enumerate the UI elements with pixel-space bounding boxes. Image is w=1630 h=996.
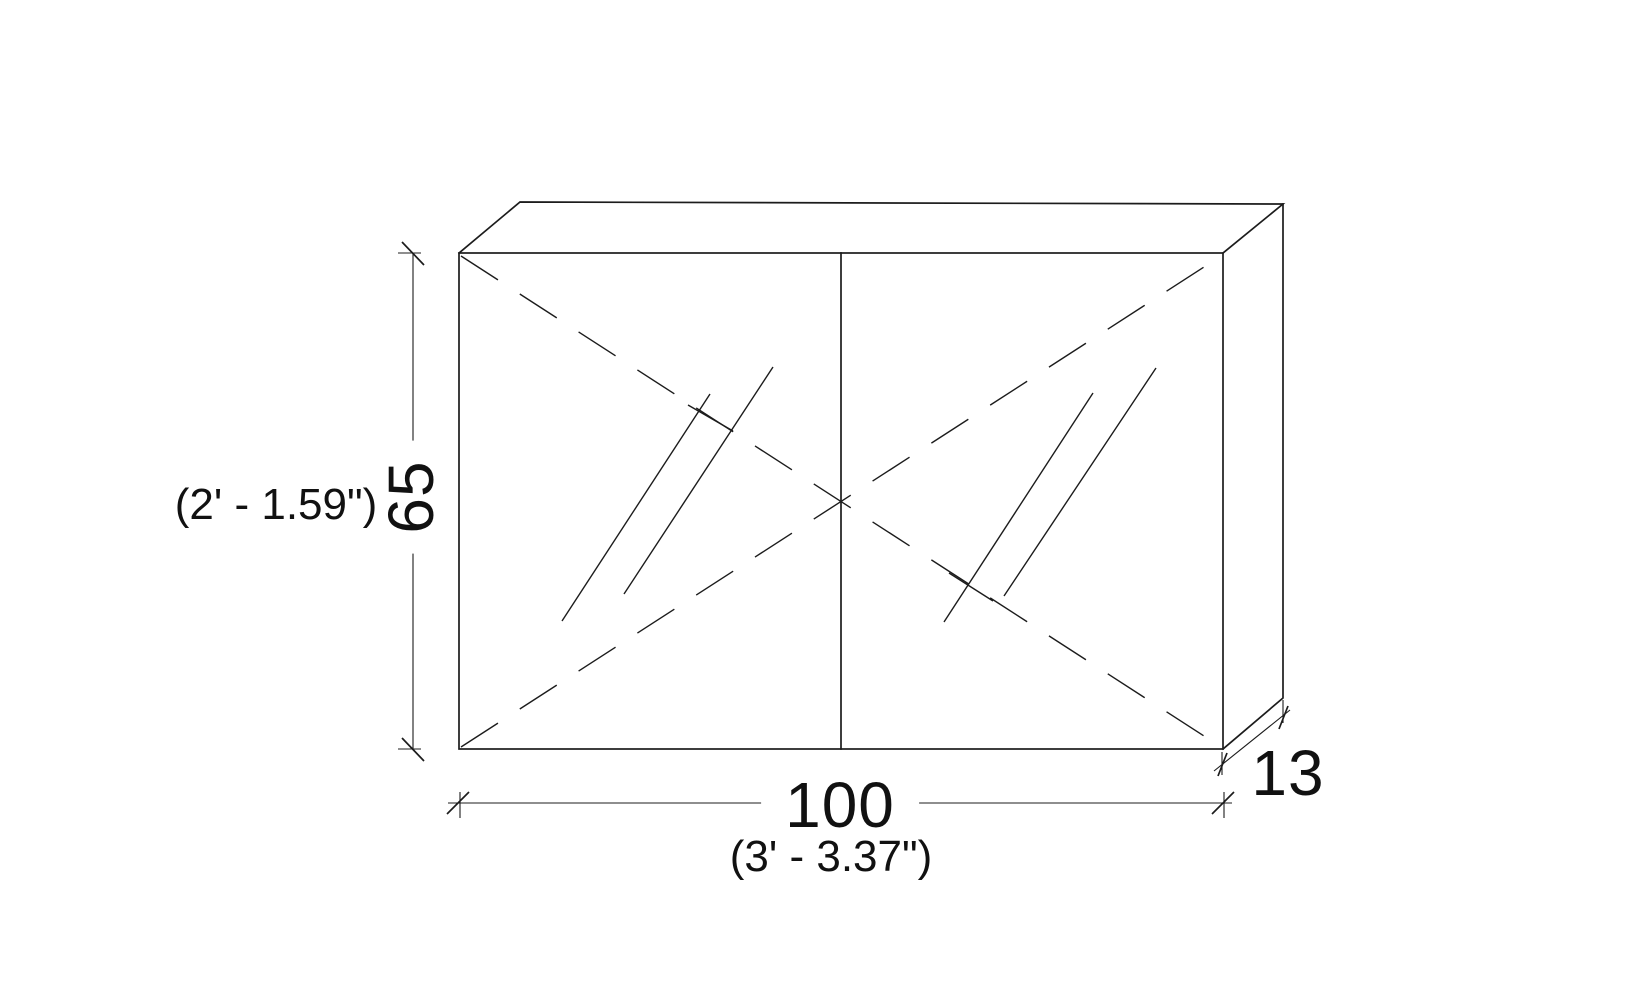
mirror-line [944, 393, 1093, 622]
top-face-outline [459, 202, 1283, 253]
mirror-hatch-right-door [944, 368, 1156, 622]
right-side-outline [1223, 204, 1283, 749]
width-dimension-value: 100 [761, 771, 919, 839]
mirror-line [1004, 368, 1156, 596]
mirror-tick [949, 573, 993, 601]
cabinet-outline [459, 202, 1283, 749]
height-dimension-value: 65 [377, 440, 445, 553]
width-dimension-imperial-label: (3' - 3.37") [730, 835, 933, 879]
drawing-canvas: 65 (2' - 1.59") 100 (3' - 3.37") 13 [0, 0, 1630, 996]
mirror-hatch-left-door [562, 367, 773, 621]
height-dimension-imperial-label: (2' - 1.59") [175, 483, 378, 527]
mirror-line [562, 394, 710, 621]
depth-dimension-value: 13 [1245, 739, 1330, 807]
mirror-line [624, 367, 773, 594]
